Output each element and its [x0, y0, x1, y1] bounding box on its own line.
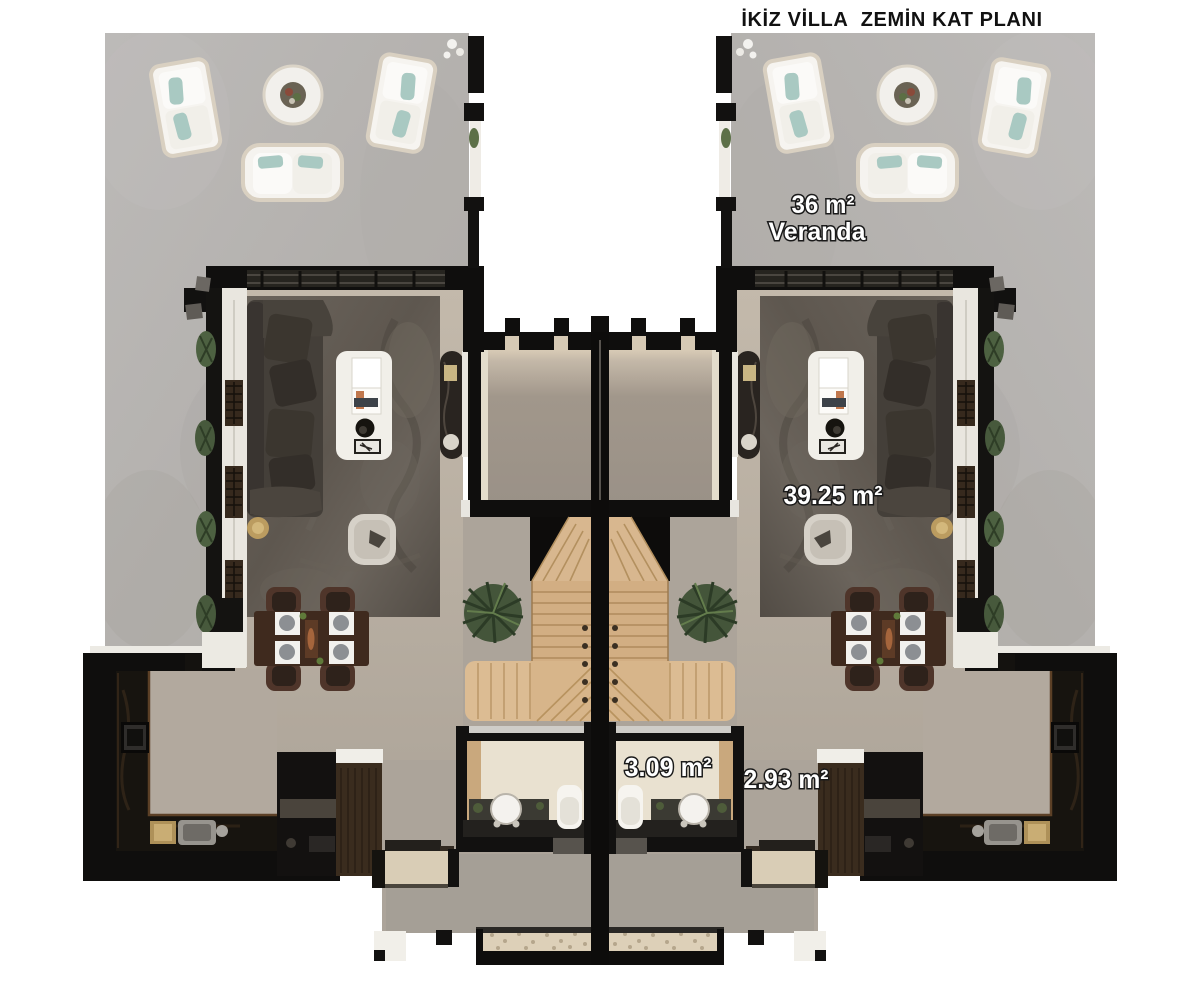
svg-text:39.25 m²: 39.25 m² — [784, 480, 883, 510]
svg-text:3.09 m²: 3.09 m² — [625, 752, 712, 782]
svg-text:Veranda: Veranda — [769, 218, 867, 246]
svg-text:İKİZ VİLLA ZEMİN KAT PLANI: İKİZ VİLLA ZEMİN KAT PLANI — [741, 8, 1042, 31]
svg-text:2.93 m²: 2.93 m² — [744, 764, 829, 794]
svg-text:36 m²: 36 m² — [792, 191, 855, 219]
